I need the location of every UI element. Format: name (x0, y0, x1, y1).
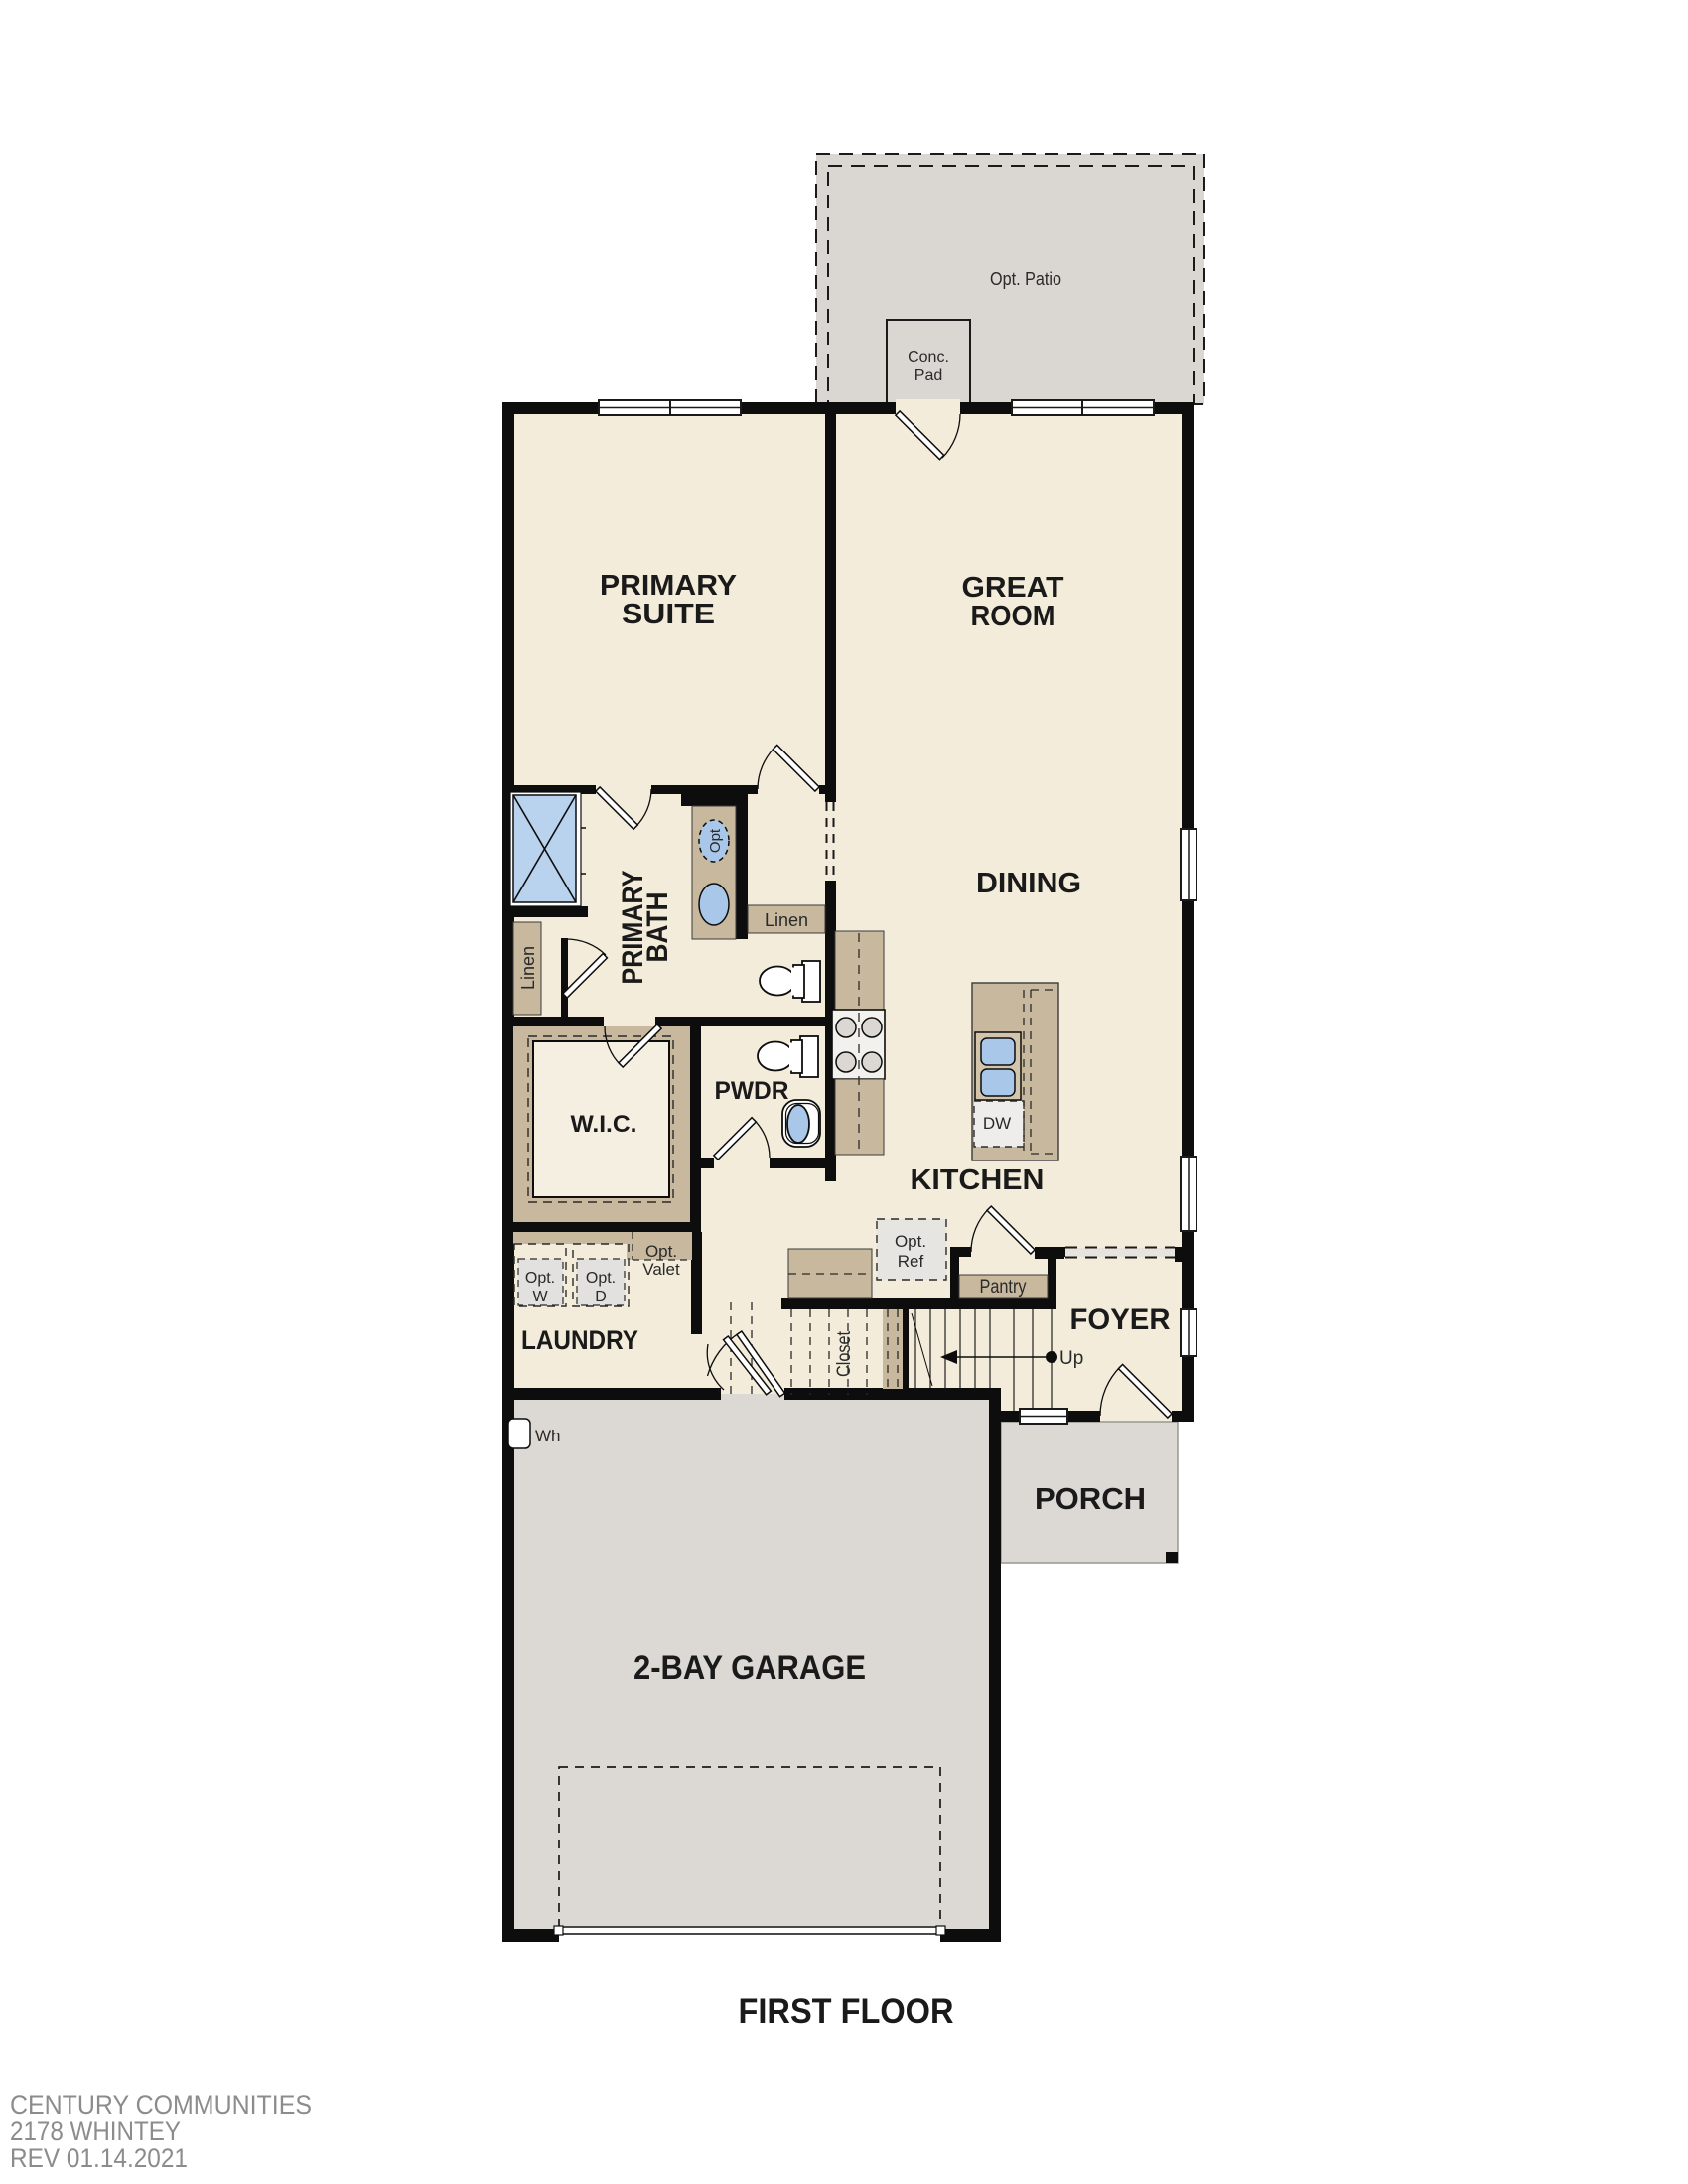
svg-text:SUITE: SUITE (622, 599, 715, 630)
svg-text:PRIMARY: PRIMARY (600, 570, 737, 602)
svg-text:KITCHEN: KITCHEN (911, 1164, 1045, 1196)
svg-text:Wh: Wh (535, 1427, 561, 1445)
svg-text:Linen: Linen (765, 910, 808, 930)
svg-text:LAUNDRY: LAUNDRY (521, 1325, 638, 1355)
svg-text:DINING: DINING (976, 868, 1081, 899)
svg-text:W.I.C.: W.I.C. (571, 1111, 637, 1138)
svg-text:Linen: Linen (518, 946, 538, 990)
svg-text:2178 WHINTEY: 2178 WHINTEY (10, 2116, 181, 2146)
svg-text:2-BAY GARAGE: 2-BAY GARAGE (633, 1649, 866, 1687)
svg-text:REV 01.14.2021: REV 01.14.2021 (10, 2143, 188, 2173)
svg-text:Opt. Patio: Opt. Patio (990, 269, 1061, 289)
svg-text:Opt.: Opt. (645, 1242, 677, 1261)
svg-text:Opt: Opt (707, 828, 724, 853)
svg-text:Pantry: Pantry (980, 1277, 1027, 1297)
svg-text:PORCH: PORCH (1035, 1481, 1146, 1516)
svg-text:Opt.: Opt. (525, 1270, 555, 1287)
svg-text:Up: Up (1059, 1348, 1083, 1369)
svg-text:PWDR: PWDR (715, 1077, 789, 1105)
svg-text:Conc.: Conc. (908, 349, 949, 366)
svg-text:Ref: Ref (898, 1252, 924, 1271)
svg-text:ROOM: ROOM (971, 601, 1055, 632)
svg-text:Pad: Pad (914, 367, 942, 384)
svg-text:Opt.: Opt. (895, 1232, 926, 1251)
svg-text:CENTURY COMMUNITIES: CENTURY COMMUNITIES (10, 2090, 312, 2119)
svg-text:Valet: Valet (642, 1260, 680, 1279)
svg-text:FOYER: FOYER (1070, 1303, 1171, 1336)
svg-text:DW: DW (983, 1114, 1011, 1133)
svg-text:Opt.: Opt. (586, 1270, 616, 1287)
svg-text:W: W (532, 1289, 548, 1305)
svg-text:FIRST FLOOR: FIRST FLOOR (739, 1992, 954, 2031)
svg-text:Closet: Closet (834, 1330, 855, 1377)
svg-text:D: D (595, 1289, 607, 1305)
svg-text:GREAT: GREAT (962, 572, 1064, 604)
